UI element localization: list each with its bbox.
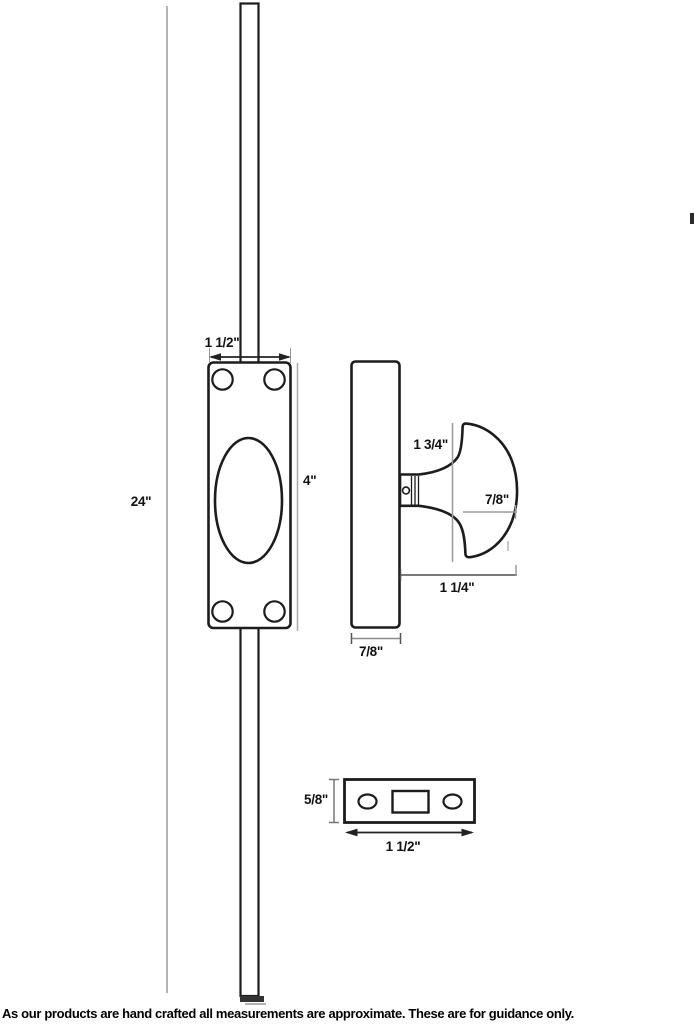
disclaimer-text: As our products are hand crafted all mea…	[2, 1006, 574, 1021]
bolt-rod-lower	[241, 627, 259, 996]
edge-artifact-mark	[690, 213, 694, 224]
screw-hole-top-right	[264, 369, 284, 389]
bolt-rod-upper	[241, 4, 259, 364]
dim-label-knob-height: 1 3/4"	[413, 437, 448, 452]
dim-label-strike-width: 1 1/2"	[386, 839, 421, 854]
dim-label-knob-projection: 1 1/4"	[440, 580, 475, 595]
arrowhead-left-icon	[345, 829, 358, 837]
arrowhead-left-icon	[209, 353, 221, 361]
screw-hole-top-left	[212, 369, 232, 389]
dim-label-knob-depth: 7/8"	[485, 492, 509, 507]
strike-bolt-opening	[393, 791, 429, 813]
dim-label-plate-height: 4"	[303, 473, 316, 488]
screw-hole-bottom-left	[212, 601, 232, 621]
dim-label-strike-height: 5/8"	[304, 792, 328, 807]
set-screw-hole	[403, 487, 410, 494]
arrowhead-right-icon	[279, 353, 291, 361]
technical-drawing-canvas: 24" 1 1/2" 4" 1 3/4" 7/8" 1 1/4" 7/8" 5/…	[0, 0, 694, 1024]
screw-hole-bottom-right	[264, 601, 284, 621]
dim-label-body-depth: 7/8"	[359, 644, 383, 659]
faceplate-oval-cutout	[215, 438, 282, 563]
strike-screw-hole-left	[359, 795, 377, 809]
side-view-body	[352, 362, 400, 628]
dim-label-rod-length: 24"	[131, 494, 152, 509]
flush-bolt-diagram: 24" 1 1/2" 4" 1 3/4" 7/8" 1 1/4" 7/8" 5/…	[0, 0, 694, 1024]
strike-screw-hole-right	[444, 795, 462, 809]
arrowhead-right-icon	[462, 829, 475, 837]
bolt-rod-tip	[240, 996, 264, 1002]
dim-label-plate-width: 1 1/2"	[205, 335, 240, 350]
